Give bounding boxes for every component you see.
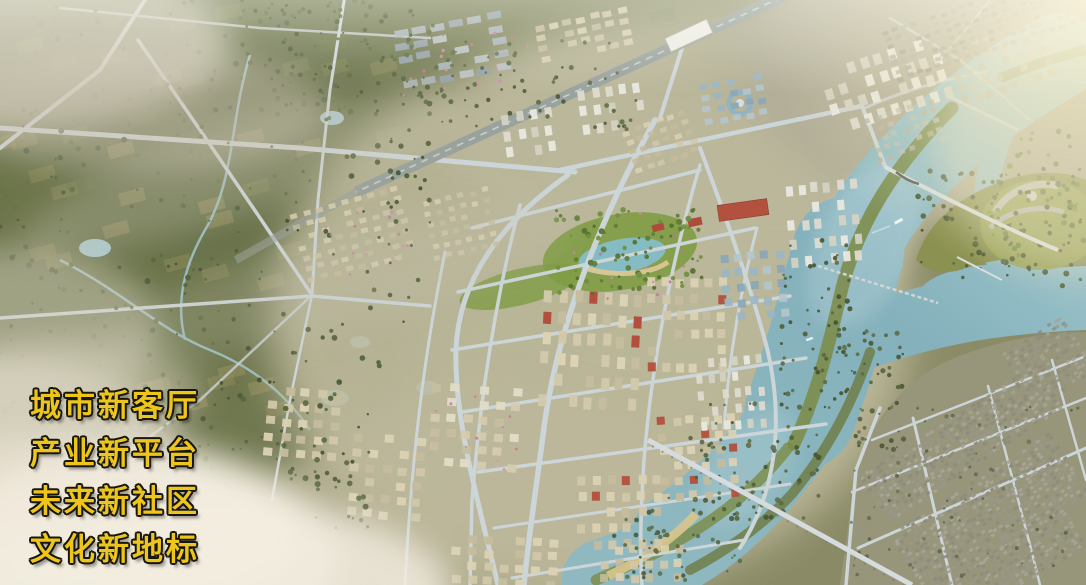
city-aerial-render: 城市新客厅 产业新平台 未来新社区 文化新地标 bbox=[0, 0, 1086, 585]
slogan-line-2: 产业新平台 bbox=[30, 430, 200, 478]
slogan-line-1: 城市新客厅 bbox=[30, 382, 200, 430]
slogan-text-block: 城市新客厅 产业新平台 未来新社区 文化新地标 bbox=[30, 382, 200, 574]
slogan-line-3: 未来新社区 bbox=[30, 478, 200, 526]
slogan-line-4: 文化新地标 bbox=[30, 526, 200, 574]
